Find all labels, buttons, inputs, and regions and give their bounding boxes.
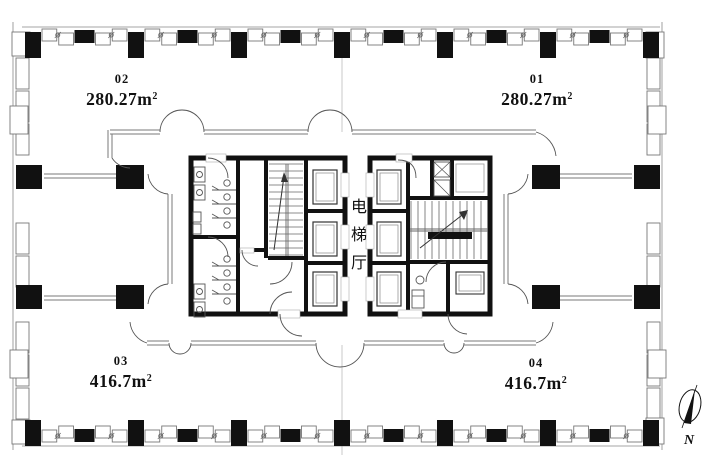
- unit-02-number: 02: [47, 72, 197, 86]
- north-indicator: N: [668, 384, 714, 447]
- unit-03-number: 03: [46, 354, 196, 368]
- unit-02-area: 280.27m2: [47, 89, 197, 113]
- unit-04-area: 416.7m2: [461, 373, 611, 397]
- unit-04-label: 04 416.7m2: [461, 356, 611, 397]
- unit-02-label: 02 280.27m2: [47, 72, 197, 113]
- unit-04-number: 04: [461, 356, 611, 370]
- north-arrow-icon: [668, 384, 714, 432]
- core-left-block: [191, 158, 345, 314]
- floor-plan: 02 280.27m2 01 280.27m2 03 416.7m2 04 41…: [0, 0, 716, 456]
- unit-01-area: 280.27m2: [462, 89, 612, 113]
- north-label: N: [664, 435, 714, 447]
- unit-03-area: 416.7m2: [46, 371, 196, 395]
- unit-01-label: 01 280.27m2: [462, 72, 612, 113]
- unit-01-number: 01: [462, 72, 612, 86]
- unit-03-label: 03 416.7m2: [46, 354, 196, 395]
- elevator-hall-label: 电梯厅: [344, 198, 368, 294]
